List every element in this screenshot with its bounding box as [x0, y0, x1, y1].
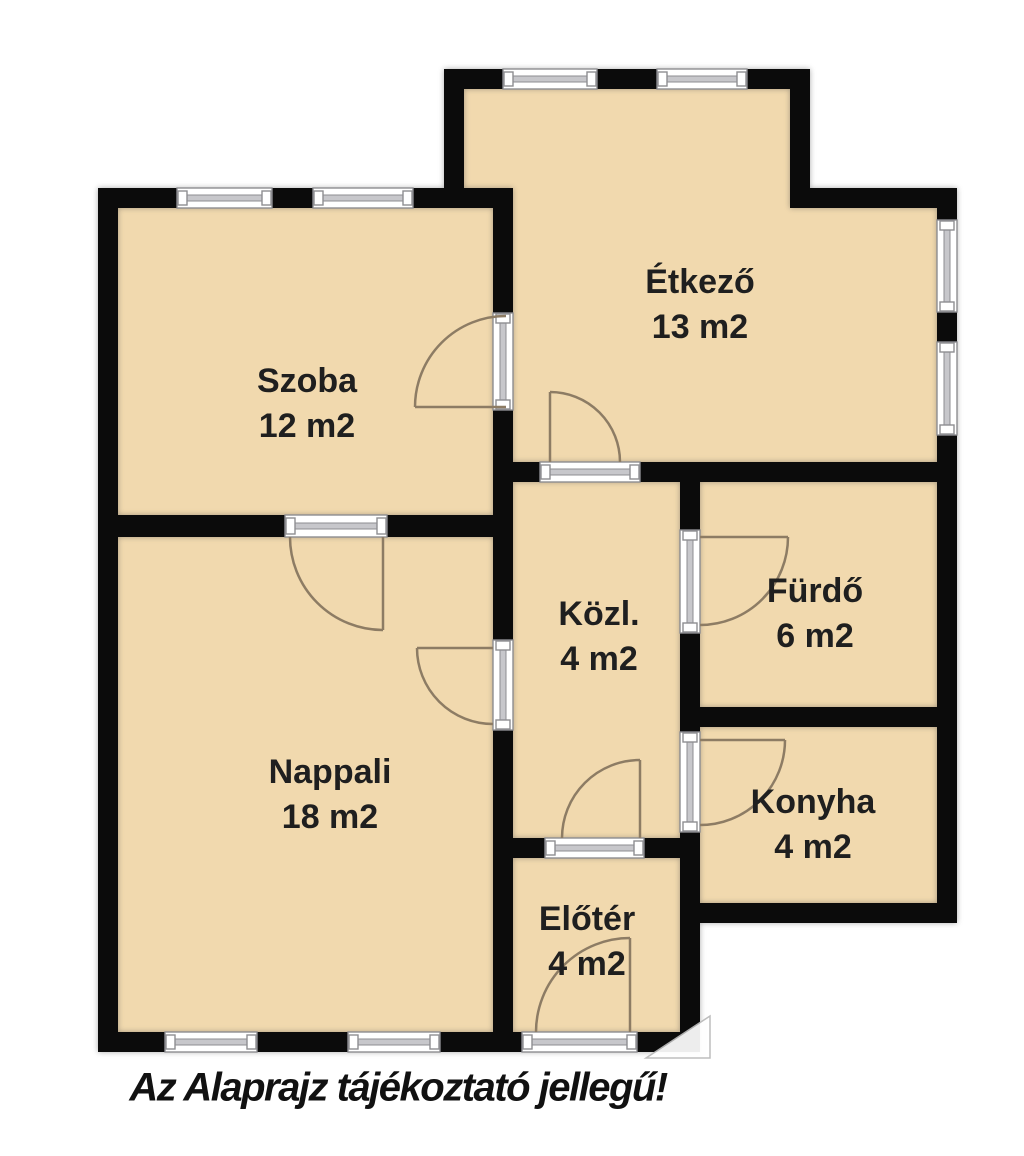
room-label-furdo: Fürdő 6 m2 — [767, 569, 863, 659]
window-nappali-bottom-1 — [165, 1032, 257, 1052]
window-etkezo-top-2 — [657, 69, 747, 89]
room-label-nappali: Nappali 18 m2 — [269, 750, 392, 840]
window-szoba-top-2 — [313, 188, 413, 208]
window-right-2 — [937, 342, 957, 435]
window-etkezo-top-1 — [503, 69, 597, 89]
door-frame-etkezo — [540, 462, 640, 482]
room-area: 4 m2 — [774, 825, 852, 870]
room-name: Előtér — [539, 897, 635, 942]
room-area: 6 m2 — [776, 614, 854, 659]
door-frame-nappali — [493, 640, 513, 730]
fill-etkezo-upper — [444, 69, 810, 208]
room-name: Étkező — [645, 260, 755, 305]
door-frame-furdo — [680, 530, 700, 633]
room-label-szoba: Szoba 12 m2 — [257, 359, 357, 449]
room-label-etkezo: Étkező 13 m2 — [645, 260, 755, 350]
room-area: 12 m2 — [259, 404, 355, 449]
door-frame-entrance — [522, 1032, 637, 1052]
wall-konyha-bottom — [680, 903, 957, 923]
wall-etkezo-left — [444, 69, 464, 208]
room-area: 13 m2 — [652, 305, 748, 350]
room-label-konyha: Konyha 4 m2 — [751, 780, 876, 870]
room-name: Szoba — [257, 359, 357, 404]
room-area: 4 m2 — [560, 637, 638, 682]
floor-plan-canvas: Szoba 12 m2 Étkező 13 m2 Közl. 4 m2 Fürd… — [0, 0, 1024, 1156]
room-name: Fürdő — [767, 569, 863, 614]
wall-etkezo-top — [444, 69, 810, 89]
door-frame-szoba-nappali — [285, 515, 387, 537]
room-name: Közl. — [558, 592, 639, 637]
window-nappali-bottom-2 — [348, 1032, 440, 1052]
wall-furdo-konyha — [680, 707, 957, 727]
door-frame-konyha — [680, 732, 700, 832]
room-label-eloter: Előtér 4 m2 — [539, 897, 635, 987]
disclaimer-caption: Az Alaprajz tájékoztató jellegű! — [129, 1066, 666, 1111]
room-label-kozl: Közl. 4 m2 — [558, 592, 639, 682]
wall-etkezo-upper-right — [790, 69, 810, 208]
door-frame-kozl-eloter — [545, 838, 644, 858]
room-area: 4 m2 — [548, 942, 626, 987]
window-right-1 — [937, 220, 957, 312]
room-name: Konyha — [751, 780, 876, 825]
door-frame-szoba — [493, 313, 513, 410]
floor-plan-drawing — [0, 0, 1024, 1156]
wall-step-top — [790, 188, 957, 208]
window-szoba-top-1 — [177, 188, 272, 208]
room-area: 18 m2 — [282, 795, 378, 840]
room-name: Nappali — [269, 750, 392, 795]
wall-outer-left — [98, 188, 118, 1052]
fill-left-block — [98, 188, 513, 1052]
